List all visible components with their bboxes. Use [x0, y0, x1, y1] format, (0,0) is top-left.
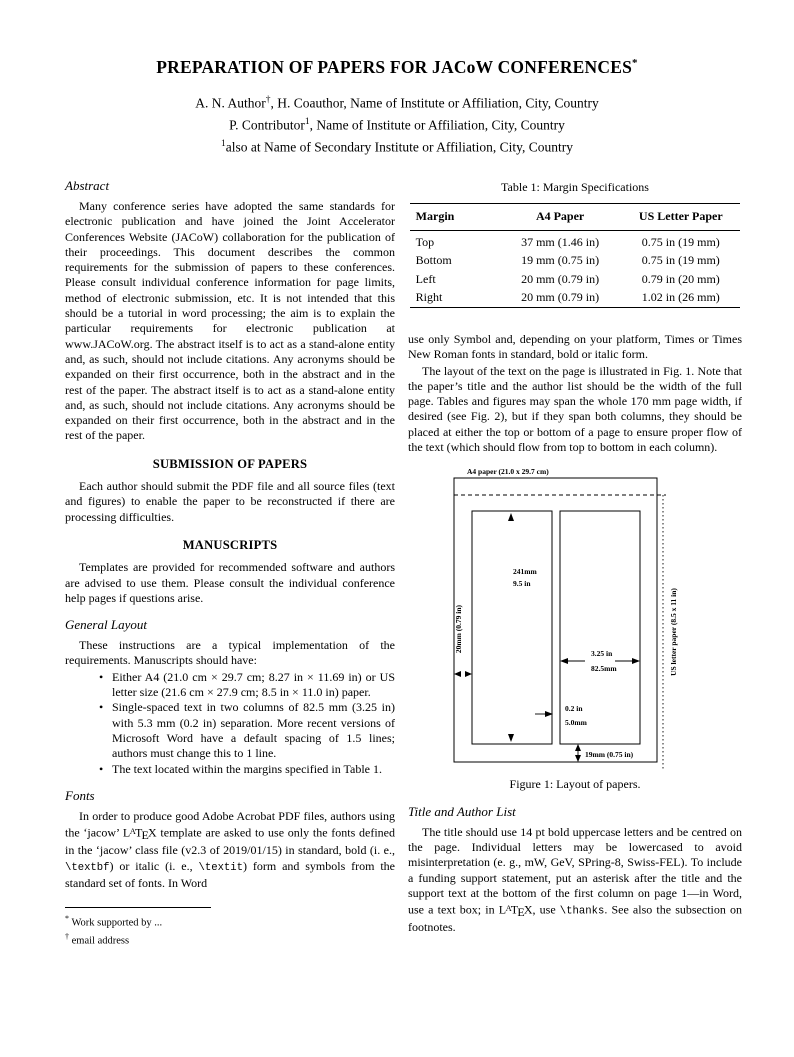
author-line: 1also at Name of Secondary Institute or …: [0, 135, 794, 157]
figure1-layout-diagram: A4 paper (21.0 x 29.7 cm) US letter pape…: [408, 464, 742, 774]
col-header: US Letter Paper: [621, 204, 740, 230]
figure-column-height-in: 9.5 in: [513, 579, 531, 588]
margin-specifications-table: Margin A4 Paper US Letter Paper Top 37 m…: [410, 203, 741, 308]
fonts-continuation-text: use only Symbol and, depending on your p…: [408, 332, 742, 363]
title-block: PREPARATION OF PAPERS FOR JACoW CONFEREN…: [0, 0, 794, 157]
paper-title-text: PREPARATION OF PAPERS FOR JACoW CONFEREN…: [156, 57, 632, 77]
table-row: Left 20 mm (0.79 in) 0.79 in (20 mm): [410, 270, 741, 288]
subsection-heading-title-author-list: Title and Author List: [408, 804, 742, 820]
arrow-up-icon: [575, 744, 581, 751]
table1-caption: Table 1: Margin Specifications: [408, 180, 742, 195]
figure-column-width-mm: 82.5mm: [591, 664, 617, 673]
arrow-up-icon: [508, 513, 514, 521]
subsection-heading-fonts: Fonts: [65, 788, 395, 804]
author-line: A. N. Author†, H. Coauthor, Name of Inst…: [0, 91, 794, 113]
layout-text: The layout of the text on the page is il…: [408, 364, 742, 456]
footnote-marker: †: [65, 932, 69, 941]
left-column: Abstract Many conference series have ado…: [65, 178, 395, 948]
two-column-body: Abstract Many conference series have ado…: [65, 178, 742, 948]
arrow-right-icon: [632, 658, 640, 664]
fonts-text: In order to produce good Adobe Acrobat P…: [65, 809, 395, 891]
manuscripts-text: Templates are provided for recommended s…: [65, 560, 395, 606]
title-author-list-text: The title should use 14 pt bold uppercas…: [408, 825, 742, 936]
arrow-left-icon: [560, 658, 568, 664]
abstract-text: Many conference series have adopted the …: [65, 199, 395, 444]
left-column-box: [472, 511, 552, 744]
figure-a4-label: A4 paper (21.0 x 29.7 cm): [467, 467, 549, 476]
footnote-rule: [65, 907, 211, 908]
figure-gap-in: 0.2 in: [565, 704, 583, 713]
a4-paper-outline: [454, 478, 657, 762]
footnote-funding: * Work supported by ...: [65, 912, 395, 930]
section-heading-manuscripts: MANUSCRIPTS: [65, 538, 395, 553]
arrow-down-icon: [508, 734, 514, 742]
requirements-list: Either A4 (21.0 cm × 29.7 cm; 8.27 in × …: [65, 670, 395, 777]
figure1-caption: Figure 1: Layout of papers.: [408, 777, 742, 792]
submission-text: Each author should submit the PDF file a…: [65, 479, 395, 525]
footnote-email: † email address: [65, 930, 395, 948]
figure-column-height-mm: 241mm: [513, 567, 537, 576]
figure-us-letter-label: US letter paper (8.5 x 11 in): [669, 588, 678, 676]
figure-bottom-margin-label: 19mm (0.75 in): [585, 750, 634, 759]
author-line: P. Contributor1, Name of Institute or Af…: [0, 113, 794, 135]
section-heading-submission: SUBMISSION OF PAPERS: [65, 457, 395, 472]
table-row: Right 20 mm (0.79 in) 1.02 in (26 mm): [410, 288, 741, 307]
arrow-left-icon: [454, 671, 461, 677]
arrow-down-icon: [575, 755, 581, 762]
subsection-heading-general-layout: General Layout: [65, 617, 395, 633]
figure-gap-mm: 5.0mm: [565, 718, 588, 727]
right-column: Table 1: Margin Specifications Margin A4…: [408, 178, 742, 948]
title-footnote-marker: *: [632, 57, 638, 69]
author-list: A. N. Author†, H. Coauthor, Name of Inst…: [0, 91, 794, 157]
col-header: Margin: [410, 204, 499, 230]
list-item: Single-spaced text in two columns of 82.…: [99, 700, 395, 761]
figure-left-margin-label: 20mm (0.79 in): [454, 605, 463, 654]
table-header-row: Margin A4 Paper US Letter Paper: [410, 204, 741, 230]
list-item: Either A4 (21.0 cm × 29.7 cm; 8.27 in × …: [99, 670, 395, 701]
arrow-right-icon: [465, 671, 472, 677]
general-layout-intro: These instructions are a typical impleme…: [65, 638, 395, 669]
abstract-heading: Abstract: [65, 178, 395, 194]
list-item: The text located within the margins spec…: [99, 762, 395, 777]
paper-title: PREPARATION OF PAPERS FOR JACoW CONFEREN…: [0, 57, 794, 78]
col-header: A4 Paper: [499, 204, 621, 230]
figure-column-width-in: 3.25 in: [591, 649, 613, 658]
table-row: Bottom 19 mm (0.75 in) 0.75 in (19 mm): [410, 251, 741, 269]
footnote-marker: *: [65, 914, 69, 923]
paper-page: PREPARATION OF PAPERS FOR JACoW CONFEREN…: [0, 0, 794, 1057]
table-row: Top 37 mm (1.46 in) 0.75 in (19 mm): [410, 230, 741, 251]
